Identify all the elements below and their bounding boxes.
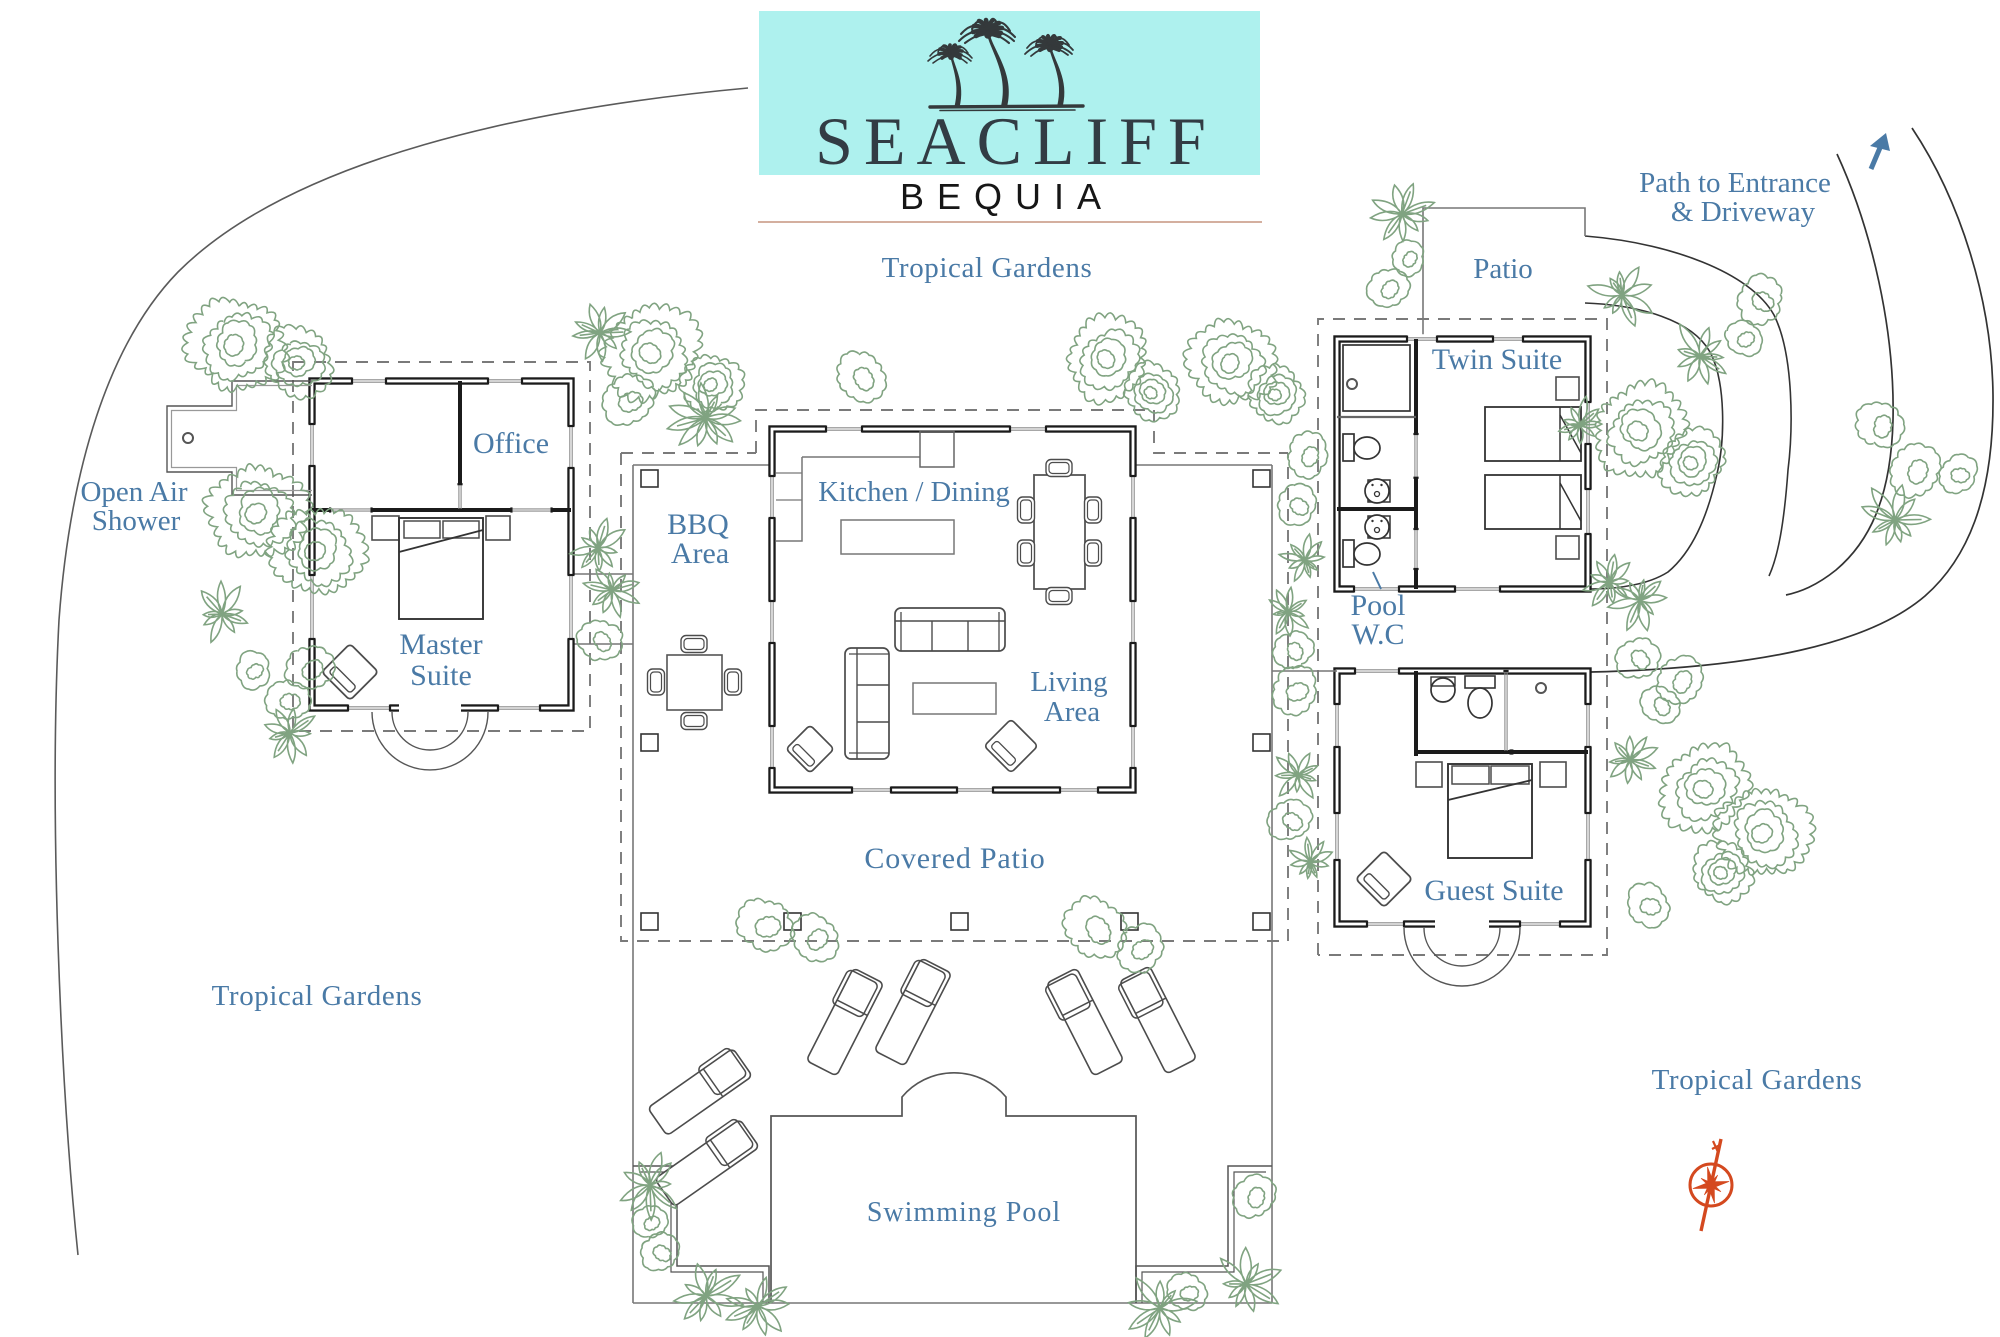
svg-text:Open Air: Open Air (80, 476, 187, 508)
svg-text:Master: Master (399, 628, 482, 661)
svg-text:Tropical Gardens: Tropical Gardens (1652, 1064, 1863, 1096)
svg-text:Guest Suite: Guest Suite (1424, 874, 1563, 907)
svg-text:Path to Entrance: Path to Entrance (1639, 167, 1831, 199)
svg-text:Area: Area (1044, 696, 1100, 728)
svg-text:Area: Area (671, 537, 729, 570)
svg-text:& Driveway: & Driveway (1671, 196, 1816, 228)
svg-text:Covered Patio: Covered Patio (864, 842, 1045, 875)
svg-text:W.C: W.C (1351, 618, 1404, 651)
svg-text:Patio: Patio (1473, 253, 1533, 285)
svg-text:SEACLIFF: SEACLIFF (815, 103, 1217, 179)
svg-text:Tropical Gardens: Tropical Gardens (882, 252, 1093, 284)
svg-text:Office: Office (473, 427, 549, 460)
svg-text:Tropical Gardens: Tropical Gardens (212, 980, 423, 1012)
svg-text:Kitchen / Dining: Kitchen / Dining (818, 477, 1010, 508)
svg-text:Suite: Suite (410, 659, 472, 692)
svg-text:Living: Living (1030, 666, 1107, 698)
svg-text:Shower: Shower (92, 505, 181, 537)
svg-text:BEQUIA: BEQUIA (900, 176, 1114, 217)
svg-text:Swimming Pool: Swimming Pool (867, 1197, 1061, 1228)
svg-text:Twin Suite: Twin Suite (1432, 343, 1562, 376)
